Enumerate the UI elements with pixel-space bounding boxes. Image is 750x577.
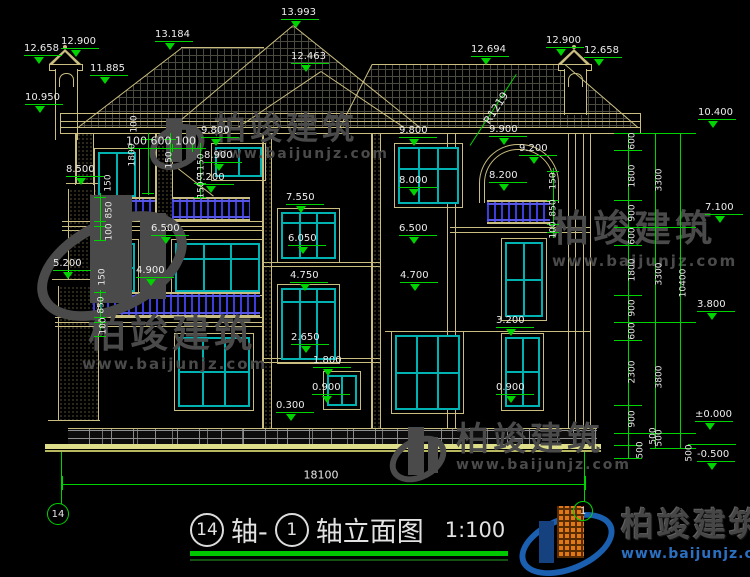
elevation-marker-line [281, 19, 319, 20]
elevation-value: 10.400 [698, 107, 733, 118]
elevation-marker-triangle [529, 157, 539, 164]
title-axis-number: 14 [196, 520, 218, 540]
elevation-value: 0.900 [496, 382, 525, 393]
elevation-value: 10.950 [25, 92, 60, 103]
elevation-value: 8.000 [399, 175, 428, 186]
elevation-marker-line [24, 55, 62, 56]
elevation-marker-triangle [481, 58, 491, 65]
elevation-value: 12.900 [61, 36, 96, 47]
dimension-text: 100 [131, 115, 140, 132]
dimension-text: 900 [629, 410, 638, 427]
elevation-marker: 12.900 [61, 37, 96, 47]
elevation-marker-triangle [71, 50, 81, 57]
elevation-marker-line [61, 48, 99, 49]
dimension-text: 850 [106, 201, 115, 218]
elevation-marker: ±0.000 [695, 410, 732, 420]
elevation-marker-line [288, 245, 326, 246]
elevation-marker: 9.900 [489, 125, 518, 135]
elevation-marker: 9.800 [201, 126, 230, 136]
elevation-value: 13.184 [155, 29, 190, 40]
axis-bubble-label: 14 [52, 509, 65, 520]
dimension-tick [614, 340, 642, 341]
dimension-text: 500 [686, 444, 695, 461]
title-text-join: 轴- [231, 510, 268, 549]
elevation-marker-triangle [298, 247, 308, 254]
dimension-text: 600 [629, 227, 638, 244]
dimension-tick [614, 245, 642, 246]
dimension-text: 18100 [304, 470, 339, 481]
elevation-marker-triangle [707, 313, 717, 320]
elevation-marker-triangle [322, 396, 332, 403]
elevation-marker-triangle [409, 237, 419, 244]
dimension-tick [94, 221, 106, 222]
elevation-marker: 5.200 [53, 259, 82, 269]
elevation-marker-triangle [301, 65, 311, 72]
elevation-marker-triangle [296, 206, 306, 213]
elevation-marker-triangle [100, 77, 110, 84]
elevation-marker-line [155, 41, 193, 42]
elevation-value: 3.800 [697, 299, 726, 310]
dimension-tick [614, 150, 642, 151]
elevation-marker-line [290, 282, 328, 283]
elevation-marker-line [201, 137, 239, 138]
dimension-text: 150 [99, 268, 108, 285]
elevation-marker-line [53, 270, 91, 271]
elevation-value: 7.100 [705, 202, 734, 213]
elevation-marker-line [204, 162, 242, 163]
elevation-marker: 6.050 [288, 234, 317, 244]
elevation-marker-line [286, 204, 324, 205]
title-underline-green [190, 551, 508, 556]
elevation-value: 12.658 [584, 45, 619, 56]
elevation-value: 7.550 [286, 192, 315, 203]
elevation-marker-line [496, 394, 534, 395]
elevation-marker: 12.694 [471, 45, 506, 55]
elevation-marker: 12.463 [291, 52, 326, 62]
elevation-marker-line [399, 235, 437, 236]
elevation-marker-triangle [506, 329, 516, 336]
elevation-marker: 6.500 [399, 224, 428, 234]
elevation-marker-line [151, 235, 189, 236]
dimension-tick [94, 292, 106, 293]
dimension-text: 2300 [629, 361, 638, 384]
title-axis-circle-14: 14 [190, 513, 224, 547]
elevation-marker: 4.750 [290, 271, 319, 281]
dimension-text: 10400 [680, 269, 689, 298]
elevation-marker: 8.500 [66, 165, 95, 175]
elevation-marker: 0.900 [312, 383, 341, 393]
elevation-value: 9.200 [519, 143, 548, 154]
dimension-line [62, 476, 63, 490]
dimension-tick [614, 227, 696, 228]
dimension-text: 100 [106, 223, 115, 240]
elevation-marker: 9.200 [519, 144, 548, 154]
elevation-value: 9.800 [201, 125, 230, 136]
elevation-value: 4.700 [400, 270, 429, 281]
dimension-tick [94, 336, 106, 337]
elevation-value: 4.900 [136, 265, 165, 276]
axis-bubble-14: 14 [47, 503, 69, 525]
elevation-marker-line [546, 47, 584, 48]
elevation-marker: 3.800 [697, 300, 726, 310]
title-axis-number: 1 [286, 520, 297, 540]
brand-logo-icon [515, 498, 615, 570]
brand-url: www.baijunjz.com [621, 546, 750, 562]
dimension-text: 850 [98, 296, 107, 313]
dimension-text: R1219 [482, 90, 511, 126]
elevation-marker-line [489, 136, 527, 137]
elevation-marker: 9.800 [399, 126, 428, 136]
elevation-marker: 11.885 [90, 64, 125, 74]
elevation-marker: 2.650 [291, 333, 320, 343]
title-text-suffix: 轴立面图 [316, 510, 424, 549]
elevation-marker-line [399, 187, 437, 188]
axis-bubble-1: 1 [573, 501, 593, 521]
elevation-marker-triangle [214, 164, 224, 171]
elevation-marker-triangle [286, 414, 296, 421]
elevation-marker: 4.900 [136, 266, 165, 276]
elevation-marker-triangle [499, 138, 509, 145]
title-underline-dark [190, 559, 508, 561]
elevation-value: ±0.000 [695, 409, 732, 420]
elevation-marker-triangle [708, 121, 718, 128]
elevation-marker: 1.800 [313, 356, 342, 366]
elevation-marker-triangle [556, 49, 566, 56]
elevation-marker: 8.000 [399, 176, 428, 186]
elevation-marker-line [66, 176, 104, 177]
elevation-marker-triangle [146, 279, 156, 286]
dimension-text: 100 600 100 [126, 136, 196, 147]
elevation-marker-triangle [707, 463, 717, 470]
dimension-tick [94, 197, 106, 198]
elevation-value: 1.800 [313, 355, 342, 366]
elevation-value: 12.658 [24, 43, 59, 54]
dimension-text: 600 [629, 132, 638, 149]
dimension-text: 100 [550, 221, 559, 238]
elevation-value: 3.200 [496, 315, 525, 326]
elevation-marker-triangle [506, 396, 516, 403]
elevation-marker-line [697, 311, 735, 312]
elevation-marker-line [25, 104, 63, 105]
elevation-marker: 12.658 [24, 44, 59, 54]
elevation-marker: 13.993 [281, 8, 316, 18]
elevation-marker: 12.658 [584, 46, 619, 56]
elevation-value: 4.750 [290, 270, 319, 281]
elevation-marker-triangle [34, 57, 44, 64]
elevation-value: 9.900 [489, 124, 518, 135]
dimension-text: 3300 [656, 263, 665, 286]
elevation-value: 0.900 [312, 382, 341, 393]
brand-logo-block: 柏竣建筑 www.baijunjz.com [515, 498, 750, 570]
dimension-tick [142, 193, 154, 194]
elevation-marker: 7.100 [705, 203, 734, 213]
dimension-line [585, 476, 586, 490]
elevation-value: 8.500 [66, 164, 95, 175]
elevation-marker-triangle [161, 237, 171, 244]
elevation-marker-triangle [410, 284, 420, 291]
elevation-marker-triangle [211, 139, 221, 146]
elevation-marker-line [291, 344, 329, 345]
elevation-marker-line [313, 367, 351, 368]
elevation-marker: 13.184 [155, 30, 190, 40]
elevation-marker-line [695, 421, 733, 422]
elevation-value: 5.200 [53, 258, 82, 269]
dimension-text: 150 [550, 172, 559, 189]
dimension-text: 600 [629, 322, 638, 339]
elevation-marker: 7.550 [286, 193, 315, 203]
elevation-marker: 10.400 [698, 108, 733, 118]
elevation-value: -0.500 [697, 449, 729, 460]
dimension-text: 100 [100, 317, 109, 334]
dimension-tick [62, 484, 585, 485]
elevation-marker-triangle [206, 186, 216, 193]
elevation-marker-line [399, 137, 437, 138]
elevation-value: 8.200 [489, 170, 518, 181]
elevation-marker-triangle [291, 21, 301, 28]
dimension-text: 3800 [656, 366, 665, 389]
dimension-text: 1150 [198, 154, 207, 177]
elevation-marker-line [519, 155, 557, 156]
dimension-annotation-layer: 13.99313.18412.46312.90012.65811.88510.9… [0, 0, 750, 577]
dimension-tick [128, 148, 196, 149]
dimension-tick [688, 444, 736, 445]
elevation-marker-line [489, 182, 527, 183]
elevation-value: 8.900 [204, 150, 233, 161]
elevation-marker-triangle [499, 184, 509, 191]
elevation-marker-triangle [165, 43, 175, 50]
elevation-marker: 10.950 [25, 93, 60, 103]
elevation-marker-line [276, 412, 314, 413]
title-axis-circle-1: 1 [275, 513, 309, 547]
elevation-marker: 0.300 [276, 401, 305, 411]
dimension-tick [614, 133, 696, 134]
elevation-marker: -0.500 [697, 450, 729, 460]
elevation-marker-line [705, 214, 743, 215]
dimension-text: 900 [629, 299, 638, 316]
elevation-marker-line [496, 327, 534, 328]
dimension-text: 850 [550, 199, 559, 216]
elevation-marker: 8.200 [489, 171, 518, 181]
elevation-value: 6.500 [151, 223, 180, 234]
elevation-marker-triangle [76, 178, 86, 185]
elevation-value: 0.300 [276, 400, 305, 411]
dimension-text: 150 [198, 181, 207, 198]
elevation-marker: 0.900 [496, 383, 525, 393]
elevation-marker-triangle [301, 346, 311, 353]
elevation-marker-triangle [409, 139, 419, 146]
axis-bubble-label: 1 [580, 506, 586, 517]
elevation-marker: 8.900 [204, 151, 233, 161]
dimension-tick [614, 200, 642, 201]
elevation-marker: 4.700 [400, 271, 429, 281]
elevation-marker-line [90, 75, 128, 76]
elevation-value: 13.993 [281, 7, 316, 18]
dimension-text: 900 [629, 204, 638, 221]
elevation-value: 2.650 [291, 332, 320, 343]
elevation-marker-line [312, 394, 350, 395]
elevation-marker-triangle [300, 284, 310, 291]
elevation-marker: 3.200 [496, 316, 525, 326]
elevation-value: 12.900 [546, 35, 581, 46]
elevation-marker: 6.500 [151, 224, 180, 234]
elevation-marker: 12.900 [546, 36, 581, 46]
elevation-marker-line [697, 461, 735, 462]
dimension-tick [614, 322, 696, 323]
elevation-value: 11.885 [90, 63, 125, 74]
elevation-value: 12.694 [471, 44, 506, 55]
dimension-tick [194, 148, 206, 149]
dimension-text: 1800 [629, 165, 638, 188]
elevation-value: 12.463 [291, 51, 326, 62]
dimension-text: 1800 [629, 259, 638, 282]
title-scale: 1:100 [445, 518, 506, 542]
elevation-drawing-sheet: 柏竣建筑 www.baijunjz.com 柏竣建筑 www.baijunjz.… [0, 0, 750, 577]
dimension-text: 3300 [656, 169, 665, 192]
elevation-marker-triangle [715, 216, 725, 223]
elevation-marker-line [400, 282, 438, 283]
dimension-text: 150 [105, 174, 114, 191]
elevation-marker-line [698, 119, 736, 120]
elevation-marker-triangle [35, 106, 45, 113]
dimension-tick [614, 405, 642, 406]
elevation-marker-triangle [409, 189, 419, 196]
dimension-text: 500 [637, 441, 646, 458]
dimension-text: 150 [166, 151, 175, 168]
elevation-value: 6.050 [288, 233, 317, 244]
elevation-marker-triangle [594, 59, 604, 66]
drawing-title: 14 轴- 1 轴立面图 1:100 [190, 510, 505, 549]
elevation-marker-triangle [705, 423, 715, 430]
elevation-marker-triangle [323, 369, 333, 376]
elevation-marker-line [136, 277, 174, 278]
elevation-value: 6.500 [399, 223, 428, 234]
elevation-marker-line [584, 57, 622, 58]
elevation-value: 9.800 [399, 125, 428, 136]
dimension-tick [614, 295, 642, 296]
dimension-text: 500 [656, 429, 665, 446]
dimension-line [100, 193, 101, 240]
brand-name: 柏竣建筑 [621, 498, 750, 546]
elevation-marker-triangle [63, 272, 73, 279]
elevation-marker-line [471, 56, 509, 57]
elevation-marker-line [291, 63, 329, 64]
